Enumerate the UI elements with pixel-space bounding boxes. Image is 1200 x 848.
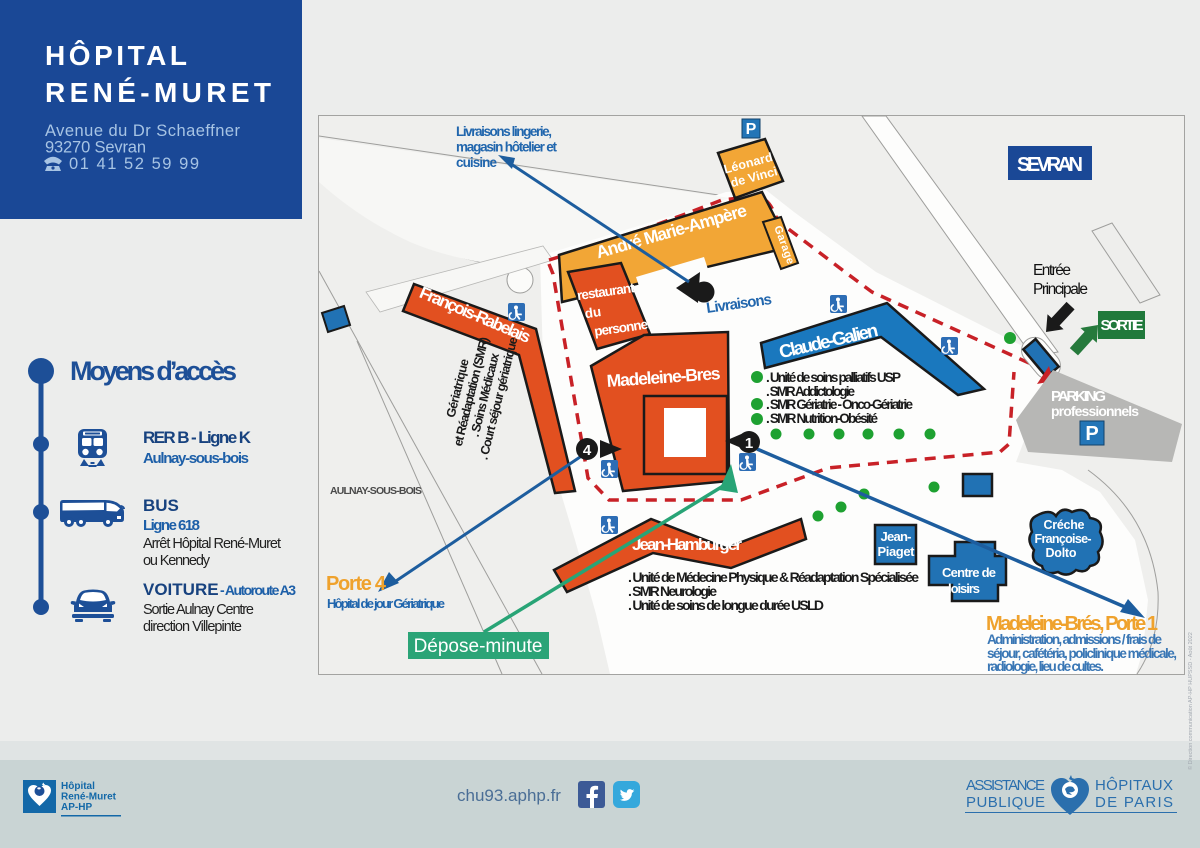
svg-text:SORTIE: SORTIE (1101, 317, 1144, 334)
svg-text:Administration, admissions / f: Administration, admissions / frais de (987, 632, 1162, 647)
svg-text:AP-HP: AP-HP (61, 802, 92, 813)
svg-text:. SMR Nutrition-Obésité: . SMR Nutrition-Obésité (766, 411, 878, 426)
svg-text:01 41 52 59 99: 01 41 52 59 99 (69, 155, 199, 173)
svg-text:PUBLIQUE: PUBLIQUE (966, 794, 1045, 811)
svg-text:Entrée: Entrée (1033, 262, 1071, 279)
svg-text:Hôpital: Hôpital (61, 781, 95, 792)
svg-text:. SMR Gériatrie - Onco-Gériatr: . SMR Gériatrie - Onco-Gériatrie (766, 397, 913, 412)
svg-text:loisirs: loisirs (948, 581, 980, 596)
svg-text:ASSISTANCE: ASSISTANCE (966, 777, 1045, 794)
svg-text:4: 4 (583, 442, 592, 459)
svg-text:chu93.aphp.fr: chu93.aphp.fr (457, 786, 561, 805)
svg-text:. Unité de soins palliatifs US: . Unité de soins palliatifs USP (766, 370, 901, 385)
svg-text:SEVRAN: SEVRAN (1017, 154, 1083, 176)
svg-text:Jean-: Jean- (881, 529, 912, 544)
svg-text:AULNAY-SOUS-BOIS: AULNAY-SOUS-BOIS (330, 485, 422, 497)
svg-text:VOITURE: VOITURE (143, 580, 219, 599)
svg-text:radiologie, lieu de cultes.: radiologie, lieu de cultes. (987, 659, 1104, 674)
svg-text:du: du (584, 304, 602, 321)
svg-text:Centre de: Centre de (942, 565, 996, 580)
svg-text:Avenue du Dr Schaeffner: Avenue du Dr Schaeffner (45, 122, 241, 140)
svg-text:© Direction communication AP-H: © Direction communication AP-HP HUPSSD -… (1187, 632, 1194, 770)
svg-text:P: P (746, 121, 757, 138)
svg-text:RER B - Ligne K: RER B - Ligne K (143, 428, 252, 447)
svg-text:Arrêt Hôpital René-Muret: Arrêt Hôpital René-Muret (143, 536, 281, 552)
svg-text:1: 1 (745, 435, 753, 452)
svg-text:Dolto: Dolto (1046, 546, 1077, 560)
svg-text:DE PARIS: DE PARIS (1095, 794, 1173, 811)
svg-text:- Autoroute A3: - Autoroute A3 (220, 582, 296, 598)
svg-text:Dépose-minute: Dépose-minute (414, 636, 543, 657)
svg-text:. Unité de soins de longue dur: . Unité de soins de longue durée USLD (628, 597, 824, 613)
svg-text:Hôpital de jour Gériatrique: Hôpital de jour Gériatrique (327, 596, 445, 611)
svg-text:Moyens d’accès: Moyens d’accès (70, 356, 237, 386)
svg-text:93270 Sevran: 93270 Sevran (45, 139, 146, 157)
svg-text:RENÉ-MURET: RENÉ-MURET (45, 77, 271, 108)
svg-text:Aulnay-sous-bois: Aulnay-sous-bois (143, 450, 249, 467)
svg-text:Jean-Hamburger: Jean-Hamburger (632, 535, 742, 554)
svg-text:HÔPITAUX: HÔPITAUX (1095, 777, 1173, 794)
svg-text:P: P (1085, 423, 1098, 445)
svg-text:Principale: Principale (1033, 281, 1088, 298)
svg-text:magasin hôtelier et: magasin hôtelier et (456, 140, 558, 155)
svg-text:Piaget: Piaget (878, 544, 916, 559)
svg-text:cuisine: cuisine (456, 155, 497, 170)
svg-text:Porte 4: Porte 4 (326, 573, 387, 595)
svg-text:ou Kennedy: ou Kennedy (143, 553, 211, 569)
svg-text:BUS: BUS (143, 496, 179, 515)
svg-text:René-Muret: René-Muret (61, 792, 117, 803)
svg-text:professionnels: professionnels (1051, 403, 1139, 419)
svg-text:Ligne 618: Ligne 618 (143, 517, 200, 534)
svg-text:Françoise-: Françoise- (1035, 532, 1092, 546)
svg-text:Créche: Créche (1044, 518, 1085, 532)
svg-text:Livraisons lingerie,: Livraisons lingerie, (456, 124, 552, 139)
svg-text:Sortie Aulnay Centre: Sortie Aulnay Centre (143, 602, 254, 618)
svg-text:direction Villepinte: direction Villepinte (143, 619, 242, 635)
